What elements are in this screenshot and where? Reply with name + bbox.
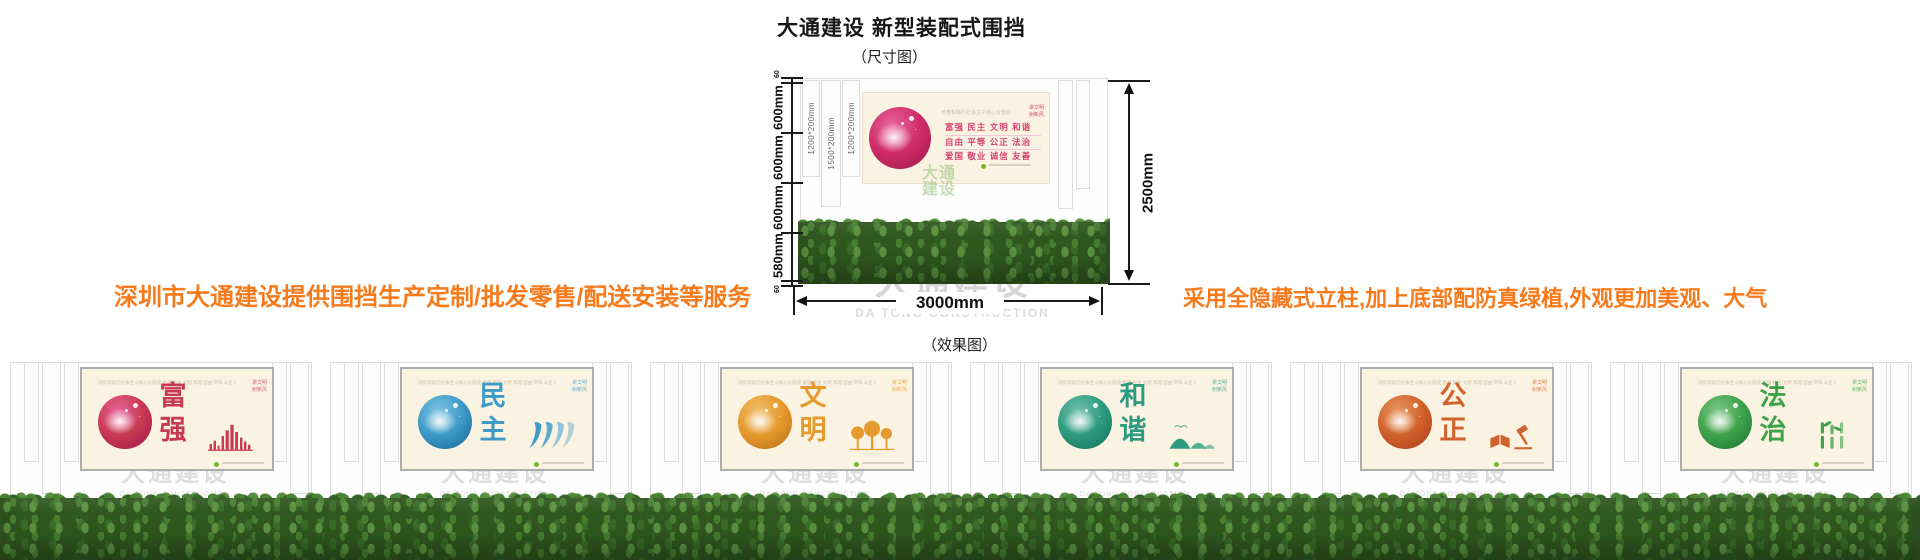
effect-hedge: [0, 498, 1920, 560]
fence-post: [1322, 362, 1341, 494]
panel-slogan: 讲文明树新风: [572, 380, 587, 394]
values-panel-rule-of-law: 培育和践行社会主义核心价值观 富强 民主 文明 和谐 自由 平等 公正 法治 爱…: [1680, 367, 1874, 471]
panel-footnote: [214, 454, 264, 472]
diagram-hedge: [798, 222, 1110, 284]
page-title: 大通建设 新型装配式围挡: [777, 12, 1026, 42]
panel-footnote: [854, 454, 904, 472]
feature-note: 采用全隐藏式立柱,加上底部配防真绿植,外观更加美观、大气: [1183, 281, 1767, 313]
arrow-up-icon: [1124, 83, 1134, 94]
papercut-circle-graphic: [418, 395, 472, 449]
dim-label-600-3: 600mm: [766, 183, 790, 232]
fence-post: [1024, 362, 1039, 462]
arrow-left-icon: [796, 296, 807, 306]
papercut-circle-graphic: [738, 395, 792, 449]
papercut-circle-graphic: [869, 107, 931, 169]
fence-post: [42, 362, 61, 494]
footnote-line: [989, 164, 1031, 166]
people-figures-motif-icon: [528, 419, 576, 453]
fence-post: [272, 362, 287, 462]
dim-cap: [1108, 80, 1150, 82]
values-panel-justice: 培育和践行社会主义核心价值观 富强 民主 文明 和谐 自由 平等 公正 法治 爱…: [1360, 367, 1554, 471]
green-dot-icon: [981, 164, 986, 169]
dim-cap: [793, 287, 795, 315]
values-panel-civility: 培育和践行社会主义核心价值观 富强 民主 文明 和谐 自由 平等 公正 法治 爱…: [720, 367, 914, 471]
trees-motif-icon: [848, 419, 896, 453]
fence-post: [704, 362, 719, 462]
dim-label-60-top: 60: [774, 66, 790, 78]
fence-post: [1002, 362, 1021, 494]
panel-slogan: 讲文明树新风: [1532, 380, 1547, 394]
panel-word: 文明: [794, 381, 828, 459]
dim-label-580: 580mm: [766, 232, 790, 280]
panel-footnote: [534, 454, 584, 472]
footnote-line: [542, 462, 584, 464]
panel-word: 民主: [474, 381, 508, 459]
bamboo-motif-icon: [1808, 419, 1856, 453]
poster-footnote: [981, 156, 1031, 174]
dim-cap: [1101, 287, 1103, 315]
book-gavel-motif-icon: [1488, 419, 1536, 453]
size-diagram-caption: （尺寸图）: [852, 46, 927, 67]
values-panel-prosperity: 培育和践行社会主义核心价值观 富强 民主 文明 和谐 自由 平等 公正 法治 爱…: [80, 367, 274, 471]
mountains-motif-icon: [1168, 419, 1216, 453]
values-row: 富强 民主 文明 和谐: [945, 121, 1041, 136]
fence-post: [1664, 362, 1679, 462]
fence-post: [1250, 362, 1269, 494]
panel-slogan: 讲文明树新风: [1852, 380, 1867, 394]
fence-post: [362, 362, 381, 494]
green-dot-icon: [534, 462, 539, 467]
diagram-post-right-2: [1076, 80, 1090, 189]
service-note: 深圳市大通建设提供围挡生产定制/批发零售/配送安装等服务: [114, 277, 751, 312]
fence-post: [1232, 362, 1247, 462]
footnote-line: [222, 462, 264, 464]
panel-footnote: [1494, 454, 1544, 472]
fence-post: [64, 362, 79, 462]
panel-footnote: [1814, 454, 1864, 472]
panel-slogan: 讲文明树新风: [252, 380, 267, 394]
fence-post: [664, 362, 679, 462]
panel-word: 富强: [154, 381, 188, 459]
papercut-circle-graphic: [1058, 395, 1112, 449]
fence-post: [24, 362, 39, 462]
diagram-post-right-1: [1058, 80, 1073, 209]
dim-label-2500: 2500mm: [1138, 146, 1158, 220]
fence-post: [384, 362, 399, 462]
poster-slogan: 讲文明 树新风: [1029, 105, 1044, 119]
panel-slogan: 讲文明树新风: [892, 380, 907, 394]
diagram-post-1500: 1500*200mm: [821, 80, 841, 207]
panel-word: 和谐: [1114, 381, 1148, 459]
effect-diagram-caption: （效果图）: [922, 334, 997, 355]
fence-post: [1872, 362, 1887, 462]
fence-post: [1570, 362, 1589, 494]
green-dot-icon: [1814, 462, 1819, 467]
fence-post: [984, 362, 999, 462]
post-size-label: 1200*200mm: [847, 102, 856, 155]
green-dot-icon: [854, 462, 859, 467]
dim-cap: [1108, 283, 1150, 285]
fence-post: [1642, 362, 1661, 494]
arrow-down-icon: [1124, 270, 1134, 281]
post-size-label: 1500*200mm: [827, 117, 836, 170]
footnote-line: [1822, 462, 1864, 464]
papercut-circle-graphic: [1378, 395, 1432, 449]
papercut-circle-graphic: [1698, 395, 1752, 449]
poster-header-text: 培育和践行社会主义核心价值观: [941, 109, 1033, 116]
fence-post: [290, 362, 309, 494]
panel-word: 公正: [1434, 381, 1468, 459]
values-row: 自由 平等 公正 法治: [945, 136, 1041, 151]
dim-label-600-1: 600mm: [766, 83, 790, 132]
panel-footnote: [1174, 454, 1224, 472]
dim-tick: [781, 280, 803, 282]
diagram-post-1200b: 1200*200mm: [842, 80, 860, 177]
city-skyline-motif-icon: [208, 419, 256, 453]
footnote-line: [1182, 462, 1224, 464]
logo-watermark: 大通 建设: [922, 166, 956, 199]
fence-post: [344, 362, 359, 462]
fence-post: [682, 362, 701, 494]
dim-label-600-2: 600mm: [766, 133, 790, 182]
dim-label-60-bottom: 60: [774, 283, 790, 293]
panel-word: 法治: [1754, 381, 1788, 459]
right-dim-line: [1128, 86, 1130, 278]
footnote-line: [862, 462, 904, 464]
arrow-right-icon: [1089, 296, 1100, 306]
fence-post: [1890, 362, 1909, 494]
fence-post: [1552, 362, 1567, 462]
papercut-circle-graphic: [98, 395, 152, 449]
green-dot-icon: [214, 462, 219, 467]
post-size-label: 1200*200mm: [807, 102, 816, 155]
poster-canvas: 大通建设 新型装配式围挡 （尺寸图） 大通建设 DA TONG CONSTRUC…: [0, 0, 1920, 560]
fence-post: [912, 362, 927, 462]
fence-post: [930, 362, 949, 494]
footnote-line: [1502, 462, 1544, 464]
fence-post: [610, 362, 629, 494]
fence-post: [1304, 362, 1319, 462]
fence-post: [592, 362, 607, 462]
dim-label-3000: 3000mm: [896, 292, 1004, 314]
green-dot-icon: [1174, 462, 1179, 467]
fence-post: [1624, 362, 1639, 462]
green-dot-icon: [1494, 462, 1499, 467]
fence-post: [1344, 362, 1359, 462]
values-panel-democracy: 培育和践行社会主义核心价值观 富强 民主 文明 和谐 自由 平等 公正 法治 爱…: [400, 367, 594, 471]
values-panel-harmony: 培育和践行社会主义核心价值观 富强 民主 文明 和谐 自由 平等 公正 法治 爱…: [1040, 367, 1234, 471]
diagram-post-1200: 1200*200mm: [802, 80, 820, 177]
panel-slogan: 讲文明树新风: [1212, 380, 1227, 394]
